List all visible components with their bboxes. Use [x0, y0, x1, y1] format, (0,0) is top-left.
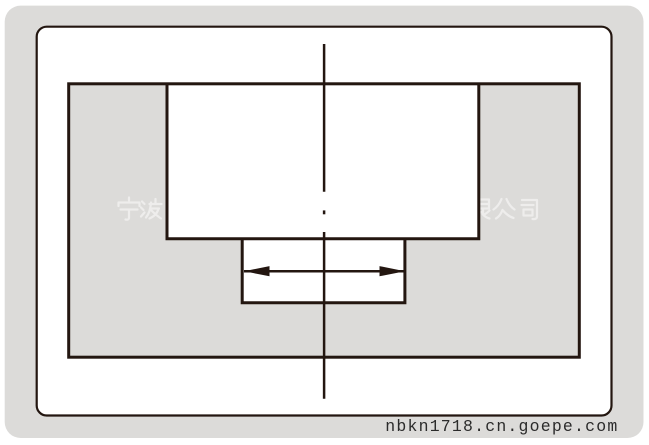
svg-text:nbkn1718.cn.goepe.com: nbkn1718.cn.goepe.com — [385, 417, 618, 436]
